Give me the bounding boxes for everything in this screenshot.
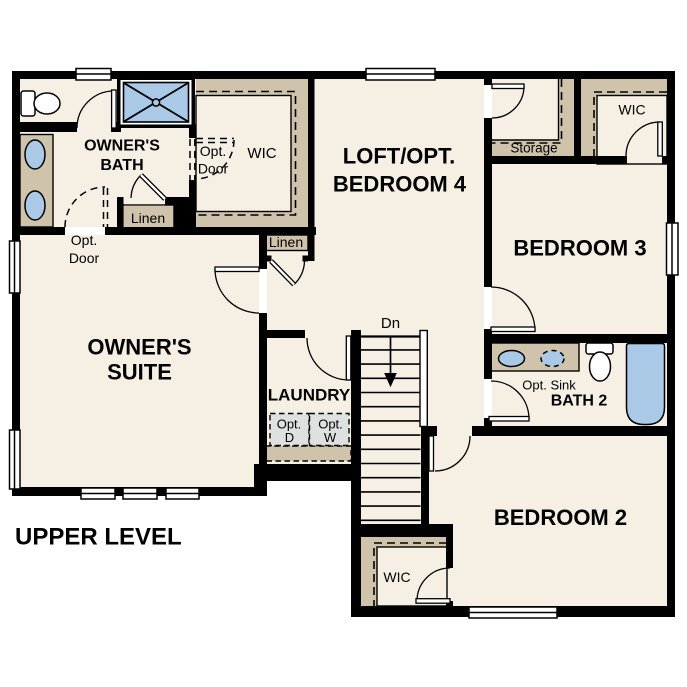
svg-text:BATH 2: BATH 2 xyxy=(551,393,608,410)
svg-text:LAUNDRY: LAUNDRY xyxy=(268,386,351,405)
svg-text:LOFT/OPT.: LOFT/OPT. xyxy=(343,144,455,169)
svg-text:Opt.: Opt. xyxy=(71,232,97,248)
svg-text:Linen: Linen xyxy=(269,234,303,250)
svg-text:OWNER'S: OWNER'S xyxy=(87,335,191,360)
svg-text:Door: Door xyxy=(69,250,100,266)
svg-text:WIC: WIC xyxy=(247,145,276,162)
svg-text:Door: Door xyxy=(198,161,229,177)
svg-text:Opt. Sink: Opt. Sink xyxy=(522,378,576,393)
svg-text:SUITE: SUITE xyxy=(107,360,172,385)
svg-text:UPPER LEVEL: UPPER LEVEL xyxy=(15,524,182,551)
svg-text:Storage: Storage xyxy=(510,141,557,156)
svg-text:OWNER'S: OWNER'S xyxy=(84,138,160,155)
svg-text:BATH: BATH xyxy=(100,157,143,174)
svg-text:BEDROOM 3: BEDROOM 3 xyxy=(513,236,646,261)
svg-text:BEDROOM 4: BEDROOM 4 xyxy=(333,172,467,197)
svg-text:WIC: WIC xyxy=(618,102,645,118)
svg-text:Linen: Linen xyxy=(131,210,165,226)
svg-text:BEDROOM 2: BEDROOM 2 xyxy=(494,505,627,530)
svg-text:Opt.: Opt. xyxy=(200,143,226,159)
svg-text:Dn: Dn xyxy=(381,315,400,332)
svg-text:D: D xyxy=(285,430,294,445)
svg-text:W: W xyxy=(324,430,337,445)
svg-text:WIC: WIC xyxy=(383,569,410,585)
